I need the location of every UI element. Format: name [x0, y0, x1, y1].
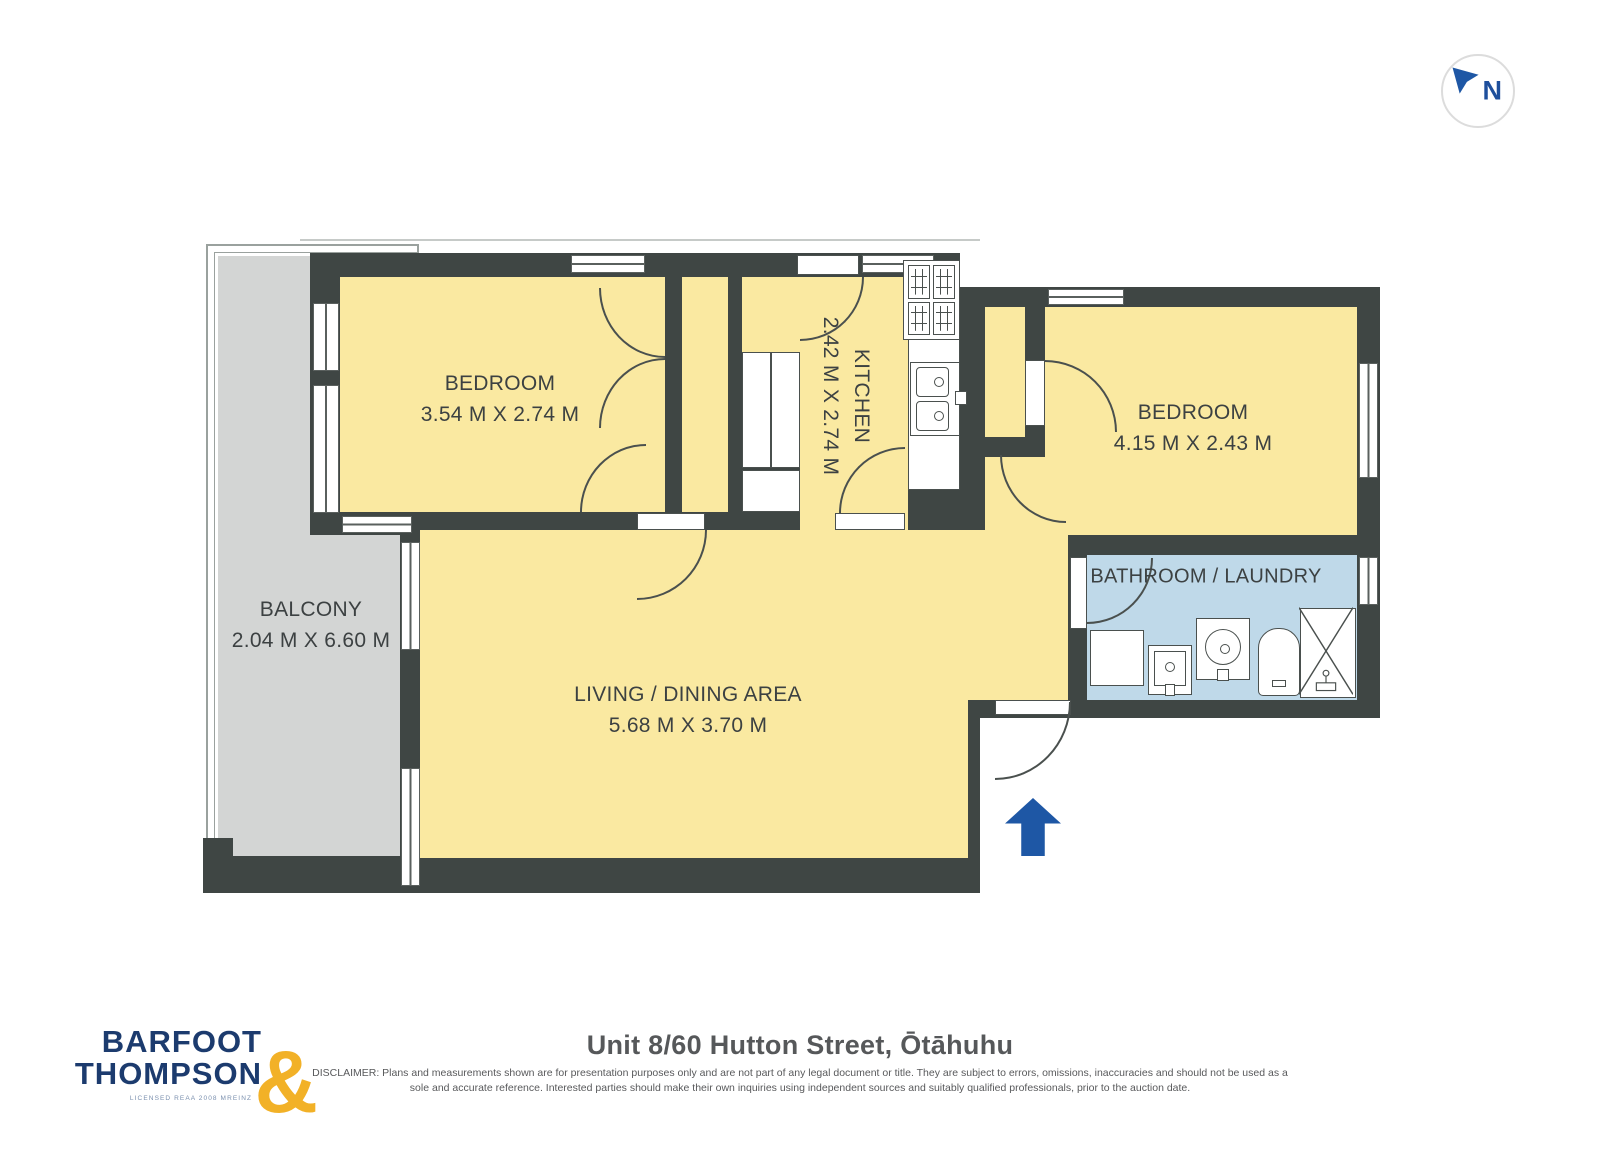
door-arc-entry: [995, 702, 1071, 780]
washing-machine-icon: [1196, 618, 1250, 680]
shower-icon: [1300, 608, 1356, 698]
kitchen-tap: [955, 391, 967, 405]
north-arrow-icon: [1448, 63, 1484, 99]
room-dims: 2.04 M X 6.60 M: [232, 625, 391, 656]
window-bedroom1-left-b: [313, 385, 339, 513]
logo-line-2: THOMPSON: [64, 1058, 262, 1090]
room-dims: 3.54 M X 2.74 M: [421, 399, 580, 430]
label-bathroom-laundry: BATHROOM / LAUNDRY: [1090, 562, 1321, 593]
toilet-icon: [1258, 628, 1300, 696]
window-bedroom1-left-a: [313, 303, 339, 371]
label-kitchen: KITCHEN 2.42 M X 2.74 M: [815, 317, 877, 476]
door-leaf-kitchen-bottom: [835, 513, 905, 530]
room-dims: 4.15 M X 2.43 M: [1114, 428, 1273, 459]
label-living-dining: LIVING / DINING AREA 5.68 M X 3.70 M: [574, 679, 802, 741]
cupboard-tall: [742, 352, 800, 468]
window-bedroom1-bottom: [342, 516, 412, 533]
wall-balcony-stub: [203, 838, 233, 893]
room-name: KITCHEN: [846, 317, 877, 476]
room-dims: 2.42 M X 2.74 M: [815, 317, 846, 476]
door-leaf-bathroom: [1070, 557, 1087, 629]
north-compass: N: [1441, 54, 1515, 128]
room-name: BEDROOM: [1114, 397, 1273, 428]
room-name: BEDROOM: [421, 368, 580, 399]
label-balcony: BALCONY 2.04 M X 6.60 M: [232, 594, 391, 656]
stove-burners: [908, 265, 955, 335]
cupboard-low: [742, 470, 800, 512]
room-name: BATHROOM / LAUNDRY: [1090, 562, 1321, 593]
window-bedroom2-right: [1359, 363, 1378, 478]
entry-arrow-icon: [1005, 798, 1061, 856]
entry-alcove-upper: [985, 307, 1025, 437]
window-top-1: [571, 255, 645, 273]
label-bedroom-1: BEDROOM 3.54 M X 2.74 M: [421, 368, 580, 430]
shower-x: [1299, 607, 1353, 695]
laundry-tub-icon: [1148, 645, 1192, 695]
window-living-balcony-b: [401, 768, 420, 886]
window-living-balcony-a: [401, 542, 420, 650]
kitchen-sink-icon: [910, 362, 960, 436]
label-bedroom-2: BEDROOM 4.15 M X 2.43 M: [1114, 397, 1273, 459]
window-bathroom-right: [1359, 557, 1378, 605]
north-letter: N: [1483, 76, 1503, 107]
door-leaf-bedroom1: [637, 513, 705, 530]
door-leaf-bedroom2: [1025, 360, 1045, 426]
window-bedroom2-top: [1048, 289, 1124, 305]
wall-balcony-bottom: [203, 856, 420, 893]
disclaimer-text: DISCLAIMER: Plans and measurements shown…: [305, 1066, 1295, 1096]
room-name: BALCONY: [232, 594, 391, 625]
room-dims: 5.68 M X 3.70 M: [574, 710, 802, 741]
floor-plan-page: BEDROOM 3.54 M X 2.74 M KITCHEN 2.42 M X…: [0, 0, 1600, 1167]
plan-title: Unit 8/60 Hutton Street, Ōtāhuhu: [0, 1030, 1600, 1061]
fascia-line: [300, 239, 980, 241]
room-name: LIVING / DINING AREA: [574, 679, 802, 710]
bathroom-vanity: [1090, 630, 1144, 686]
stove-icon: [903, 260, 960, 340]
door-leaf-kitchen-top: [797, 255, 859, 275]
cupboard-strip-top: [742, 277, 800, 352]
hall-strip: [682, 277, 728, 512]
